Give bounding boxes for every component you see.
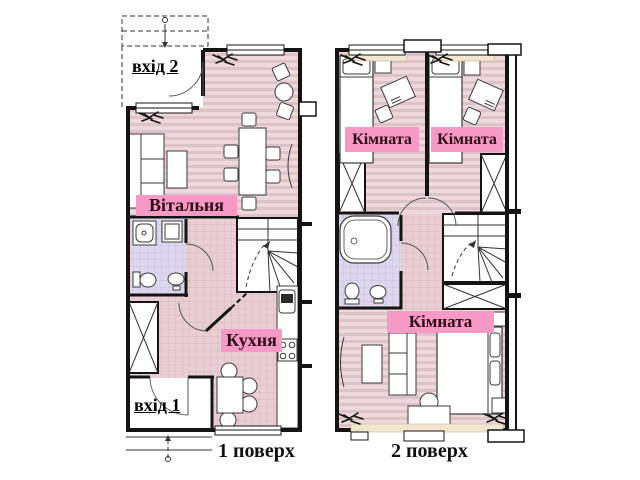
- bedside-table-icon: [464, 60, 480, 75]
- shower-icon: [133, 221, 156, 245]
- kitchen-counter: [277, 286, 298, 428]
- room-1-label: Кімната: [345, 127, 419, 152]
- kitchen-sink-icon: [279, 290, 295, 313]
- entrance-2-label: вхід 2: [132, 56, 178, 77]
- living-room-label: Вітальня: [136, 195, 237, 216]
- floor-plan-page: вхід 2 Вітальня Кухня вхід 1 1 поверх Кі…: [0, 0, 640, 480]
- floor-plan-drawing: [0, 0, 640, 480]
- coffee-table-icon: [362, 345, 382, 383]
- bedside-table-icon: [492, 312, 506, 326]
- room-2-label: Кімната: [431, 127, 503, 152]
- wardrobe-icon: [481, 154, 507, 213]
- stairs-icon: [443, 214, 507, 282]
- toilet-icon: [345, 283, 359, 304]
- wardrobe-icon: [129, 302, 158, 373]
- coffee-table-icon: [167, 151, 187, 188]
- entrance1-porch: [126, 435, 212, 462]
- sofa-icon: [389, 333, 416, 395]
- stairs-icon: [237, 218, 298, 292]
- room-3-label: Кімната: [387, 311, 494, 333]
- toilet-icon: [133, 272, 156, 287]
- bedside-table-icon: [492, 398, 506, 413]
- floor-1-caption: 1 поверх: [218, 440, 295, 463]
- entrance-1-label: вхід 1: [134, 395, 180, 416]
- washing-machine-icon: [162, 221, 182, 242]
- kitchen-label: Кухня: [221, 329, 282, 352]
- floor-plan-2: [335, 40, 524, 442]
- bathtub-icon: [340, 216, 391, 263]
- closet-icon: [443, 284, 507, 309]
- floor-2-caption: 2 поверх: [391, 440, 468, 463]
